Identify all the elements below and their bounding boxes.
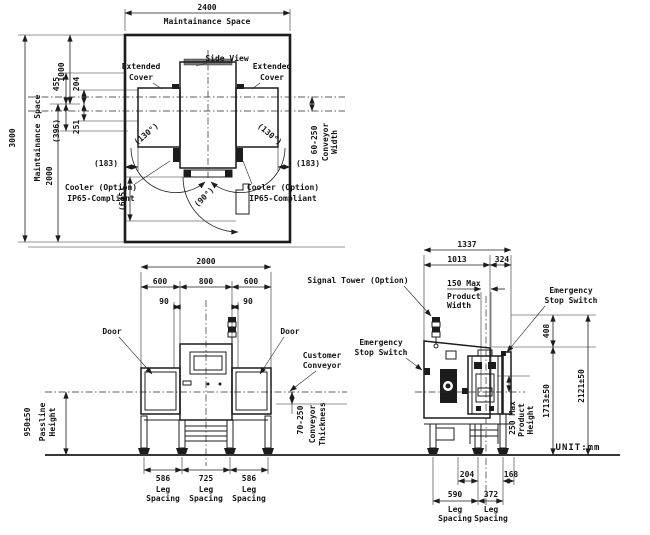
touch-panel-screen (194, 356, 222, 370)
leg-label: Leg (156, 485, 171, 494)
estop-left-label2: Stop Switch (355, 347, 408, 357)
plan-view: 2400 Maintainance Space 3000 Maintainanc… (8, 3, 345, 247)
dim-396-label: (396) (52, 119, 61, 143)
conveyor-thickness-value: 70-250 (296, 405, 305, 434)
dim-2121-label: 2121±50 (577, 369, 586, 403)
customer-conveyor-label2: Conveyor (303, 361, 342, 370)
leg-label: Leg (199, 485, 214, 494)
extended-cover-left-label2: Cover (129, 73, 153, 82)
extended-cover-right-label2: Cover (260, 73, 284, 82)
leg-label: Leg (242, 485, 257, 494)
passline-label1: Passline (37, 403, 47, 442)
cooler-right-label2: IP65-Compliant (249, 193, 317, 203)
spacing-label: Spacing (232, 493, 266, 503)
dim-1013-label: 1013 (447, 255, 466, 264)
unit-label: UNIT:mm (556, 443, 601, 453)
cover-left-front (141, 368, 180, 414)
machine-dimension-drawing: 2400 Maintainance Space 3000 Maintainanc… (0, 0, 650, 535)
passline-label2: Height (47, 407, 57, 436)
spacing-label: Spacing (189, 493, 223, 503)
product-height-value: 250 Max (508, 401, 517, 435)
estop-right-label2: Stop Switch (545, 295, 598, 305)
angle-130-right-label: (130°) (256, 121, 284, 146)
product-width-label2: Width (447, 300, 471, 310)
angle-130-left-label: (130°) (132, 121, 160, 146)
leg-spacing-586-right: 586 (242, 474, 257, 483)
side-legs (427, 414, 509, 454)
passline-height-value: 950±50 (23, 407, 32, 436)
spacing-label: Spacing (146, 493, 180, 503)
estop-left-label1: Emergency (359, 338, 403, 347)
dim-600-left-label: 600 (153, 277, 168, 286)
door-left-label: Door (102, 327, 121, 336)
dim-455-label: 455 (52, 77, 61, 92)
customer-conveyor-label1: Customer (303, 351, 342, 360)
drawing-page: 2400 Maintainance Space 3000 Maintainanc… (0, 0, 650, 535)
dim-204-plan-label: 204 (72, 77, 81, 92)
maintenance-space-top-label: Maintainance Space (164, 16, 251, 26)
signal-tower-side (432, 317, 440, 322)
product-width-label1: Product (447, 292, 481, 301)
signal-tower-front (228, 317, 236, 322)
touch-panel-bezel (190, 352, 226, 374)
dim-1713-label: 1713±50 (542, 384, 551, 418)
conveyor-width-label1: Conveyor (321, 123, 330, 162)
door-swing-arc-bottom (183, 177, 238, 232)
estop-right-label1: Emergency (549, 286, 593, 295)
angle-90-label: (90°) (193, 186, 216, 209)
spacing-label: Spacing (474, 513, 508, 523)
dim-324-label: 324 (495, 255, 510, 264)
side-elevation-view: 1337 1013 324 150 Max Product Width Sign… (307, 240, 597, 523)
maintenance-space-left-label: Maintainance Space (32, 94, 42, 181)
dim-251-label: 251 (72, 120, 81, 135)
product-height-label1: Product (517, 403, 526, 437)
dim-600-right-label: 600 (244, 277, 259, 286)
dim-3000-label: 3000 (8, 128, 17, 147)
door-right-panel (236, 372, 267, 410)
conveyor-thickness-label1: Conveyor (308, 405, 317, 444)
dim-590-label: 590 (448, 490, 463, 499)
cooler-left-label1: Cooler (Option) (65, 182, 137, 192)
conveyor-width-label2: Width (329, 130, 339, 154)
cooler-right (236, 148, 243, 162)
dim-2000-plan-label: 2000 (45, 166, 54, 185)
signal-tower-label: Signal Tower (Option) (307, 275, 408, 285)
leg-spacing-725: 725 (199, 474, 214, 483)
leg-label: Leg (484, 505, 499, 514)
dim-800-label: 800 (199, 277, 214, 286)
conveyor-width-value: 60-250 (310, 125, 319, 154)
leg-label: Leg (448, 505, 463, 514)
inspection-head (468, 356, 502, 414)
dim-2400-label: 2400 (197, 3, 216, 12)
dim-408-label: 408 (542, 324, 551, 339)
door-left-panel (145, 372, 176, 410)
dim-90-right-label: 90 (243, 297, 253, 306)
cooler-right-label1: Cooler (Option) (247, 182, 319, 192)
estop-left-switch (424, 368, 430, 375)
product-height-label2: Height (525, 405, 535, 434)
dim-204-side-label: 204 (460, 470, 475, 479)
leg-spacing-586-left: 586 (156, 474, 171, 483)
dim-183-right-label: (183) (296, 159, 320, 168)
cooler-left (173, 148, 180, 162)
dim-168-label: 168 (504, 470, 519, 479)
door-right-label: Door (280, 327, 299, 336)
extended-cover-right-label1: Extended (253, 62, 292, 71)
extended-cover-left-label1: Extended (122, 62, 161, 71)
dim-1337-label: 1337 (457, 240, 476, 249)
cooler-left-label2: IP65-Compliant (67, 193, 135, 203)
dim-90-left-label: 90 (159, 297, 169, 306)
side-view-title: Side View (205, 53, 249, 63)
cover-right-front (232, 368, 271, 414)
conveyor-thickness-label2: Thickness (317, 402, 327, 446)
dim-2000-front-label: 2000 (196, 257, 215, 266)
dim-372-label: 372 (484, 490, 499, 499)
spacing-label: Spacing (438, 513, 472, 523)
product-width-value: 150 Max (447, 279, 481, 288)
dim-183-left-label: (183) (94, 159, 118, 168)
front-view: 2000 600 800 600 90 90 (23, 257, 347, 503)
